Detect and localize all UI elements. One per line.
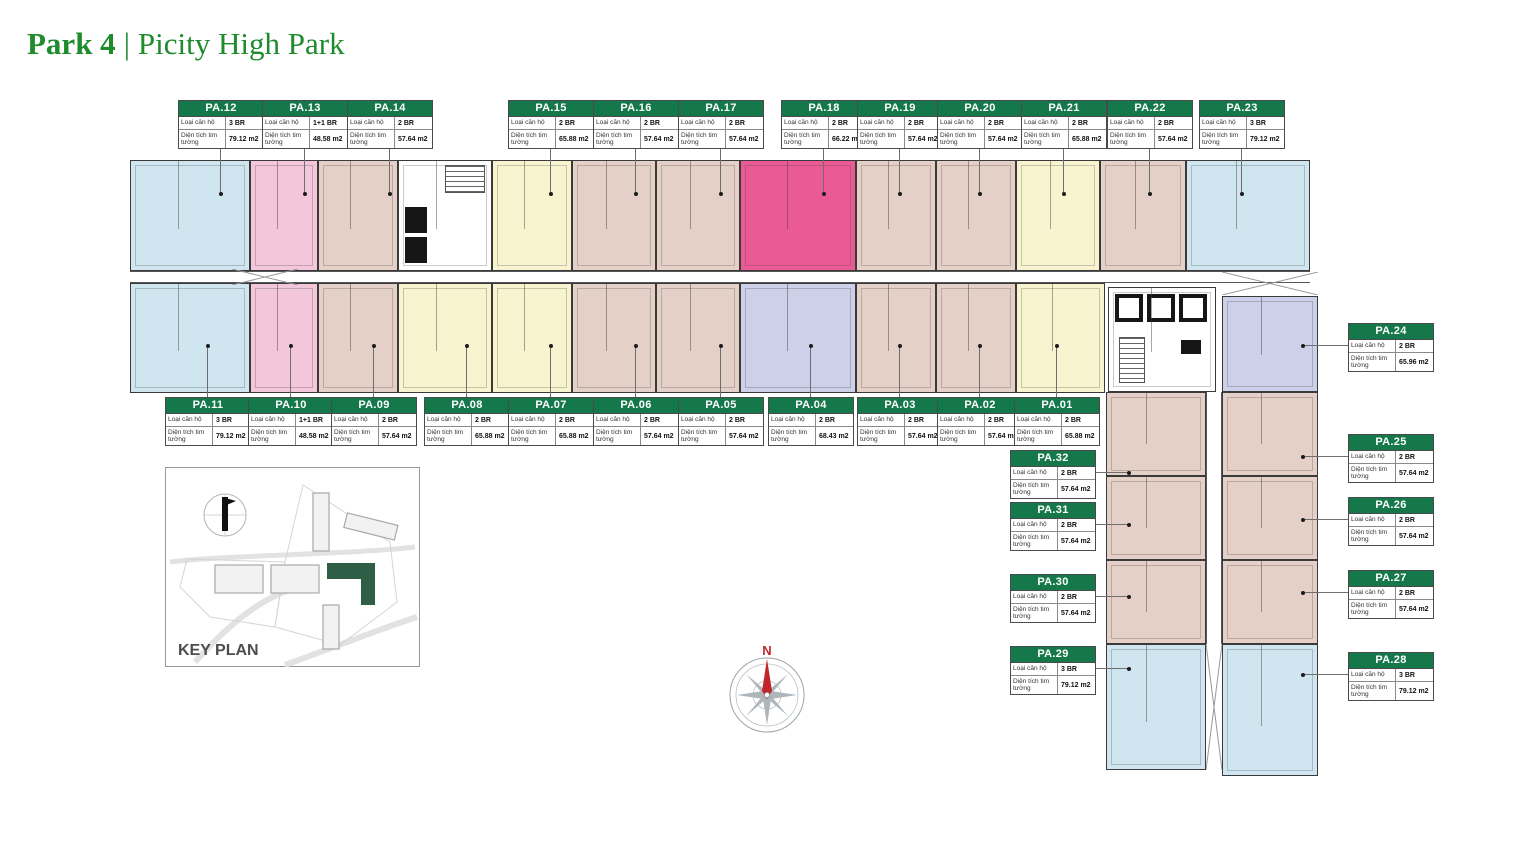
leader-PA.08 — [466, 345, 467, 397]
area-value: 65.88 m2 — [1062, 427, 1099, 445]
plan-unit-PA.22 — [1100, 160, 1186, 271]
keyplan-building — [215, 565, 263, 593]
unit-id: PA.31 — [1011, 503, 1095, 519]
plan-unit-PA.20 — [936, 160, 1016, 271]
area-label: Diện tích tim tường — [166, 427, 213, 445]
stair-hatch — [445, 165, 485, 193]
area-value: 57.64 m2 — [1155, 130, 1192, 148]
unit-id: PA.07 — [509, 398, 593, 414]
type-label: Loại căn hộ — [509, 117, 556, 129]
title-divider: | — [124, 26, 130, 61]
type-label: Loại căn hộ — [769, 414, 816, 426]
unit-id: PA.21 — [1022, 101, 1106, 117]
plan-unit-PA.01 — [1016, 283, 1105, 393]
area-value: 57.64 m2 — [395, 130, 432, 148]
area-label: Diện tích tim tường — [509, 427, 556, 445]
area-value: 79.12 m2 — [1058, 676, 1095, 694]
type-value: 2 BR — [1396, 514, 1433, 526]
unit-card-PA.04: PA.04 Loại căn hộ2 BR Diện tích tim tườn… — [768, 397, 854, 446]
area-label: Diện tích tim tường — [1349, 682, 1396, 700]
unit-card-PA.22: PA.22 Loại căn hộ2 BR Diện tích tim tườn… — [1107, 100, 1193, 149]
plan-unit-PA.19 — [856, 160, 936, 271]
type-value: 2 BR — [985, 117, 1022, 129]
plan-unit-PA.08 — [398, 283, 492, 393]
unit-card-PA.30: PA.30 Loại căn hộ2 BR Diện tích tim tườn… — [1010, 574, 1096, 623]
unit-id: PA.10 — [249, 398, 333, 414]
elevator-core-main — [398, 160, 492, 271]
leader-PA.03 — [899, 345, 900, 397]
type-value: 3 BR — [1058, 663, 1095, 675]
type-label: Loại căn hộ — [1015, 414, 1062, 426]
unit-id: PA.11 — [166, 398, 250, 414]
leader-PA.22 — [1149, 147, 1150, 195]
unit-card-PA.14: PA.14 Loại căn hộ2 BR Diện tích tim tườn… — [347, 100, 433, 149]
unit-card-PA.18: PA.18 Loại căn hộ2 BR Diện tích tim tườn… — [781, 100, 867, 149]
unit-id: PA.22 — [1108, 101, 1192, 117]
type-label: Loại căn hộ — [679, 117, 726, 129]
area-value: 68.43 m2 — [816, 427, 853, 445]
unit-id: PA.18 — [782, 101, 866, 117]
leader-PA.21 — [1063, 147, 1064, 195]
shaft-block — [1181, 340, 1201, 354]
unit-card-PA.05: PA.05 Loại căn hộ2 BR Diện tích tim tườn… — [678, 397, 764, 446]
plan-unit-PA.21 — [1016, 160, 1100, 271]
type-value: 2 BR — [1058, 591, 1095, 603]
leader-PA.02 — [979, 345, 980, 397]
leader-PA.27 — [1302, 592, 1348, 593]
type-label: Loại căn hộ — [179, 117, 226, 129]
area-label: Diện tích tim tường — [332, 427, 379, 445]
area-label: Diện tích tim tường — [1022, 130, 1069, 148]
plan-unit-PA.29 — [1106, 644, 1206, 770]
type-label: Loại căn hộ — [1349, 340, 1396, 352]
plan-unit-PA.09 — [318, 283, 398, 393]
unit-id: PA.01 — [1015, 398, 1099, 414]
plan-unit-PA.13 — [250, 160, 318, 271]
leader-PA.26 — [1302, 519, 1348, 520]
unit-id: PA.13 — [263, 101, 347, 117]
plan-unit-PA.04 — [740, 283, 856, 393]
unit-id: PA.05 — [679, 398, 763, 414]
plan-unit-PA.10 — [250, 283, 318, 393]
type-value: 2 BR — [556, 414, 593, 426]
leader-PA.31 — [1094, 524, 1130, 525]
unit-id: PA.26 — [1349, 498, 1433, 514]
leader-PA.09 — [373, 345, 374, 397]
unit-card-PA.25: PA.25 Loại căn hộ2 BR Diện tích tim tườn… — [1348, 434, 1434, 483]
area-value: 57.64 m2 — [1058, 480, 1095, 498]
type-label: Loại căn hộ — [1349, 451, 1396, 463]
plan-unit-PA.06 — [572, 283, 656, 393]
area-label: Diện tích tim tường — [425, 427, 472, 445]
type-value: 2 BR — [1058, 467, 1095, 479]
leader-PA.05 — [720, 345, 721, 397]
type-label: Loại căn hộ — [249, 414, 296, 426]
area-label: Diện tích tim tường — [1349, 464, 1396, 482]
plan-unit-PA.14 — [318, 160, 398, 271]
area-label: Diện tích tim tường — [1349, 600, 1396, 618]
area-label: Diện tích tim tường — [782, 130, 829, 148]
key-plan-label: KEY PLAN — [178, 642, 259, 659]
keyplan-building — [323, 605, 339, 649]
unit-card-PA.19: PA.19 Loại căn hộ2 BR Diện tích tim tườn… — [857, 100, 943, 149]
plan-unit-PA.07 — [492, 283, 572, 393]
area-value: 57.64 m2 — [1396, 600, 1433, 618]
area-value: 65.88 m2 — [556, 427, 593, 445]
leader-PA.16 — [635, 147, 636, 195]
keyplan-building — [271, 565, 319, 593]
type-label: Loại căn hộ — [1011, 519, 1058, 531]
area-label: Diện tích tim tường — [938, 427, 985, 445]
type-value: 2 BR — [641, 414, 678, 426]
area-label: Diện tích tim tường — [1349, 527, 1396, 545]
area-label: Diện tích tim tường — [858, 130, 905, 148]
unit-id: PA.08 — [425, 398, 509, 414]
leader-PA.01 — [1056, 345, 1057, 397]
leader-PA.11 — [207, 345, 208, 397]
leader-PA.29 — [1094, 668, 1130, 669]
leader-PA.13 — [304, 147, 305, 195]
area-label: Diện tích tim tường — [679, 427, 726, 445]
type-value: 2 BR — [379, 414, 416, 426]
plan-unit-PA.32 — [1106, 392, 1206, 476]
type-label: Loại căn hộ — [594, 117, 641, 129]
plan-unit-PA.17 — [656, 160, 740, 271]
type-label: Loại căn hộ — [938, 117, 985, 129]
floorplan-page: Park 4|Picity High Park — [0, 0, 1536, 864]
area-label: Diện tích tim tường — [263, 130, 310, 148]
unit-card-PA.10: PA.10 Loại căn hộ1+1 BR Diện tích tim tư… — [248, 397, 334, 446]
unit-id: PA.25 — [1349, 435, 1433, 451]
unit-id: PA.09 — [332, 398, 416, 414]
plan-unit-PA.18 — [740, 160, 856, 271]
keyplan-building — [313, 493, 329, 551]
plan-unit-PA.15 — [492, 160, 572, 271]
type-value: 2 BR — [1062, 414, 1099, 426]
area-value: 79.12 m2 — [1396, 682, 1433, 700]
plan-unit-PA.05 — [656, 283, 740, 393]
type-label: Loại căn hộ — [1022, 117, 1069, 129]
type-value: 2 BR — [1069, 117, 1106, 129]
leader-PA.20 — [979, 147, 980, 195]
unit-card-PA.20: PA.20 Loại căn hộ2 BR Diện tích tim tườn… — [937, 100, 1023, 149]
area-label: Diện tích tim tường — [348, 130, 395, 148]
type-value: 2 BR — [556, 117, 593, 129]
expansion-joint — [1206, 644, 1222, 770]
unit-id: PA.16 — [594, 101, 678, 117]
type-value: 2 BR — [472, 414, 509, 426]
unit-card-PA.12: PA.12 Loại căn hộ3 BR Diện tích tim tườn… — [178, 100, 264, 149]
type-label: Loại căn hộ — [509, 414, 556, 426]
plan-unit-PA.16 — [572, 160, 656, 271]
type-label: Loại căn hộ — [858, 414, 905, 426]
type-value: 2 BR — [641, 117, 678, 129]
type-label: Loại căn hộ — [1349, 587, 1396, 599]
compass-north-label: N — [762, 643, 771, 658]
leader-PA.14 — [389, 147, 390, 195]
compass-rose: N — [722, 643, 812, 735]
leader-PA.04 — [810, 345, 811, 397]
unit-id: PA.20 — [938, 101, 1022, 117]
type-label: Loại căn hộ — [348, 117, 395, 129]
type-value: 2 BR — [1058, 519, 1095, 531]
area-value: 57.64 m2 — [1396, 464, 1433, 482]
corridor-wing — [1206, 392, 1222, 644]
type-value: 3 BR — [226, 117, 263, 129]
type-label: Loại căn hộ — [1011, 591, 1058, 603]
title-project: Park 4 — [27, 26, 116, 61]
elevator-shaft — [405, 237, 427, 263]
type-value: 2 BR — [816, 414, 853, 426]
plan-unit-PA.28 — [1222, 644, 1318, 776]
area-label: Diện tích tim tường — [1011, 676, 1058, 694]
area-value: 48.58 m2 — [296, 427, 333, 445]
plan-unit-PA.23 — [1186, 160, 1310, 271]
area-value: 57.64 m2 — [985, 130, 1022, 148]
type-value: 3 BR — [213, 414, 250, 426]
area-value: 65.88 m2 — [1069, 130, 1106, 148]
unit-card-PA.21: PA.21 Loại căn hộ2 BR Diện tích tim tườn… — [1021, 100, 1107, 149]
unit-card-PA.08: PA.08 Loại căn hộ2 BR Diện tích tim tườn… — [424, 397, 510, 446]
unit-id: PA.06 — [594, 398, 678, 414]
unit-id: PA.02 — [938, 398, 1022, 414]
type-label: Loại căn hộ — [858, 117, 905, 129]
area-label: Diện tích tim tường — [594, 130, 641, 148]
plan-unit-PA.31 — [1106, 476, 1206, 560]
type-label: Loại căn hộ — [166, 414, 213, 426]
unit-card-PA.27: PA.27 Loại căn hộ2 BR Diện tích tim tườn… — [1348, 570, 1434, 619]
elevator-shaft — [405, 207, 427, 233]
area-label: Diện tích tim tường — [938, 130, 985, 148]
leader-PA.17 — [720, 147, 721, 195]
area-label: Diện tích tim tường — [679, 130, 726, 148]
area-value: 57.64 m2 — [1058, 604, 1095, 622]
leader-PA.18 — [823, 147, 824, 195]
leader-PA.24 — [1302, 345, 1348, 346]
unit-card-PA.31: PA.31 Loại căn hộ2 BR Diện tích tim tườn… — [1010, 502, 1096, 551]
unit-id: PA.23 — [1200, 101, 1284, 117]
area-value: 57.64 m2 — [1058, 532, 1095, 550]
unit-card-PA.29: PA.29 Loại căn hộ3 BR Diện tích tim tườn… — [1010, 646, 1096, 695]
elevator-shaft — [1147, 294, 1175, 322]
type-label: Loại căn hộ — [782, 117, 829, 129]
plan-unit-PA.25 — [1222, 392, 1318, 476]
area-label: Diện tích tim tường — [858, 427, 905, 445]
area-label: Diện tích tim tường — [769, 427, 816, 445]
type-value: 2 BR — [726, 414, 763, 426]
unit-id: PA.12 — [179, 101, 263, 117]
corridor-main — [130, 271, 1310, 283]
area-value: 57.64 m2 — [641, 130, 678, 148]
unit-id: PA.28 — [1349, 653, 1433, 669]
expansion-joint — [1222, 272, 1318, 295]
area-label: Diện tích tim tường — [594, 427, 641, 445]
type-value: 2 BR — [1155, 117, 1192, 129]
type-label: Loại căn hộ — [1349, 669, 1396, 681]
type-label: Loại căn hộ — [938, 414, 985, 426]
type-value: 2 BR — [1396, 451, 1433, 463]
unit-card-PA.17: PA.17 Loại căn hộ2 BR Diện tích tim tườn… — [678, 100, 764, 149]
type-value: 2 BR — [395, 117, 432, 129]
area-value: 57.64 m2 — [726, 427, 763, 445]
unit-card-PA.16: PA.16 Loại căn hộ2 BR Diện tích tim tườn… — [593, 100, 679, 149]
unit-card-PA.23: PA.23 Loại căn hộ3 BR Diện tích tim tườn… — [1199, 100, 1285, 149]
type-label: Loại căn hộ — [1011, 663, 1058, 675]
leader-PA.15 — [550, 147, 551, 195]
unit-id: PA.17 — [679, 101, 763, 117]
title-name: Picity High Park — [138, 26, 345, 61]
unit-card-PA.28: PA.28 Loại căn hộ3 BR Diện tích tim tườn… — [1348, 652, 1434, 701]
unit-card-PA.15: PA.15 Loại căn hộ2 BR Diện tích tim tườn… — [508, 100, 594, 149]
unit-id: PA.14 — [348, 101, 432, 117]
plan-unit-PA.30 — [1106, 560, 1206, 644]
leader-PA.19 — [899, 147, 900, 195]
leader-PA.30 — [1094, 596, 1130, 597]
key-plan: KEY PLAN — [165, 467, 420, 667]
area-value: 65.96 m2 — [1396, 353, 1433, 371]
leader-PA.23 — [1241, 147, 1242, 195]
area-value: 57.64 m2 — [726, 130, 763, 148]
elevator-shaft — [1115, 294, 1143, 322]
unit-id: PA.27 — [1349, 571, 1433, 587]
plan-unit-PA.12 — [130, 160, 250, 271]
area-value: 79.12 m2 — [226, 130, 263, 148]
elevator-core-wing — [1108, 287, 1216, 392]
unit-card-PA.24: PA.24 Loại căn hộ2 BR Diện tích tim tườn… — [1348, 323, 1434, 372]
expansion-joint — [232, 269, 298, 285]
unit-card-PA.06: PA.06 Loại căn hộ2 BR Diện tích tim tườn… — [593, 397, 679, 446]
type-label: Loại căn hộ — [332, 414, 379, 426]
area-label: Diện tích tim tường — [1015, 427, 1062, 445]
type-label: Loại căn hộ — [263, 117, 310, 129]
type-value: 3 BR — [1247, 117, 1284, 129]
keyplan-north-arrow — [204, 494, 246, 536]
type-label: Loại căn hộ — [594, 414, 641, 426]
area-label: Diện tích tim tường — [1011, 532, 1058, 550]
type-label: Loại căn hộ — [1011, 467, 1058, 479]
area-label: Diện tích tim tường — [179, 130, 226, 148]
area-value: 57.64 m2 — [641, 427, 678, 445]
unit-card-PA.09: PA.09 Loại căn hộ2 BR Diện tích tim tườn… — [331, 397, 417, 446]
area-label: Diện tích tim tường — [1108, 130, 1155, 148]
area-label: Diện tích tim tường — [1011, 480, 1058, 498]
leader-PA.07 — [550, 345, 551, 397]
leader-PA.10 — [290, 345, 291, 397]
unit-card-PA.26: PA.26 Loại căn hộ2 BR Diện tích tim tườn… — [1348, 497, 1434, 546]
unit-id: PA.29 — [1011, 647, 1095, 663]
stair-hatch — [1119, 337, 1145, 383]
type-label: Loại căn hộ — [1200, 117, 1247, 129]
leader-PA.28 — [1302, 674, 1348, 675]
type-value: 1+1 BR — [296, 414, 333, 426]
type-value: 2 BR — [1396, 587, 1433, 599]
area-value: 79.12 m2 — [1247, 130, 1284, 148]
area-value: 57.64 m2 — [379, 427, 416, 445]
area-value: 57.64 m2 — [1396, 527, 1433, 545]
leader-PA.25 — [1302, 456, 1348, 457]
unit-id: PA.24 — [1349, 324, 1433, 340]
type-label: Loại căn hộ — [679, 414, 726, 426]
unit-id: PA.32 — [1011, 451, 1095, 467]
leader-PA.06 — [635, 345, 636, 397]
unit-card-PA.02: PA.02 Loại căn hộ2 BR Diện tích tim tườn… — [937, 397, 1023, 446]
unit-card-PA.03: PA.03 Loại căn hộ2 BR Diện tích tim tườn… — [857, 397, 943, 446]
area-label: Diện tích tim tường — [1200, 130, 1247, 148]
type-value: 2 BR — [726, 117, 763, 129]
page-title: Park 4|Picity High Park — [27, 26, 345, 62]
type-value: 3 BR — [1396, 669, 1433, 681]
area-label: Diện tích tim tường — [509, 130, 556, 148]
area-value: 65.88 m2 — [556, 130, 593, 148]
area-value: 65.88 m2 — [472, 427, 509, 445]
area-label: Diện tích tim tường — [1011, 604, 1058, 622]
leader-PA.32 — [1094, 472, 1130, 473]
area-value: 48.58 m2 — [310, 130, 347, 148]
type-label: Loại căn hộ — [425, 414, 472, 426]
unit-id: PA.30 — [1011, 575, 1095, 591]
unit-id: PA.04 — [769, 398, 853, 414]
unit-card-PA.32: PA.32 Loại căn hộ2 BR Diện tích tim tườn… — [1010, 450, 1096, 499]
plan-unit-PA.03 — [856, 283, 936, 393]
unit-card-PA.07: PA.07 Loại căn hộ2 BR Diện tích tim tườn… — [508, 397, 594, 446]
area-value: 79.12 m2 — [213, 427, 250, 445]
unit-card-PA.13: PA.13 Loại căn hộ1+1 BR Diện tích tim tư… — [262, 100, 348, 149]
type-value: 2 BR — [1396, 340, 1433, 352]
type-value: 1+1 BR — [310, 117, 347, 129]
leader-PA.12 — [220, 147, 221, 195]
unit-card-PA.01: PA.01 Loại căn hộ2 BR Diện tích tim tườn… — [1014, 397, 1100, 446]
elevator-shaft — [1179, 294, 1207, 322]
plan-unit-PA.27 — [1222, 560, 1318, 644]
type-label: Loại căn hộ — [1349, 514, 1396, 526]
unit-id: PA.15 — [509, 101, 593, 117]
area-label: Diện tích tim tường — [1349, 353, 1396, 371]
type-label: Loại căn hộ — [1108, 117, 1155, 129]
unit-id: PA.19 — [858, 101, 942, 117]
plan-unit-PA.02 — [936, 283, 1016, 393]
area-label: Diện tích tim tường — [249, 427, 296, 445]
unit-card-PA.11: PA.11 Loại căn hộ3 BR Diện tích tim tườn… — [165, 397, 251, 446]
unit-id: PA.03 — [858, 398, 942, 414]
plan-unit-PA.11 — [130, 283, 250, 393]
